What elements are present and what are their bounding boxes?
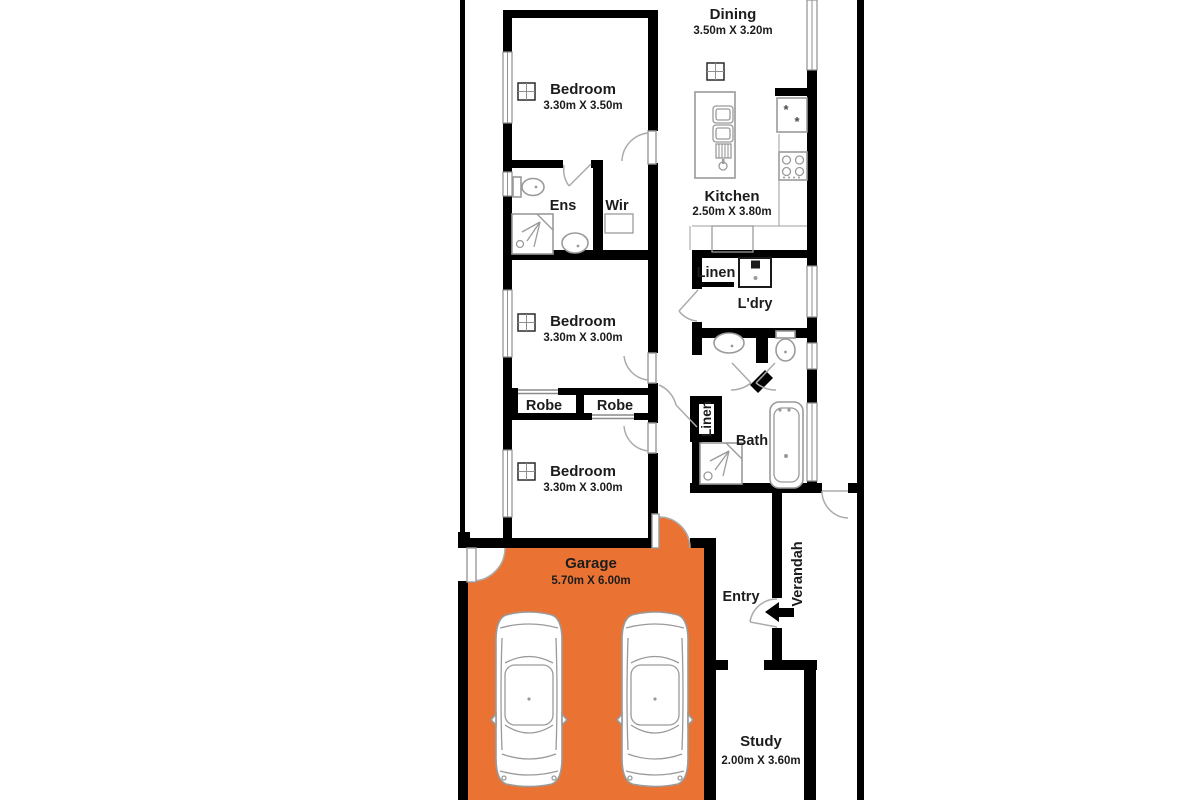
- room-bedroom-1: Bedroom 3.30m X 3.50m: [543, 81, 622, 112]
- window-grid-icon: [518, 463, 535, 480]
- room-label: Entry: [722, 589, 759, 605]
- window-grid-icon: [518, 314, 535, 331]
- room-ensuite: Ens: [550, 198, 577, 214]
- room-kitchen: Kitchen 2.50m X 3.80m: [692, 188, 771, 218]
- room-label: Robe: [597, 398, 633, 414]
- shower-icon: [700, 443, 742, 484]
- kitchen-island: [695, 92, 735, 178]
- room-label: Verandah: [790, 541, 806, 606]
- door-laundry: [679, 290, 698, 321]
- room-dining: Dining 3.50m X 3.20m: [693, 6, 772, 37]
- room-label: L'dry: [738, 296, 773, 312]
- room-study: Study 2.00m X 3.60m: [721, 733, 800, 767]
- room-label: Wir: [605, 198, 629, 214]
- laundry-trough-icon: [739, 258, 771, 287]
- wir-shelf: [605, 214, 633, 233]
- door-bedroom3: [624, 423, 656, 453]
- room-dims: 5.70m X 6.00m: [551, 575, 630, 587]
- room-label: Garage: [565, 555, 617, 572]
- door-bedroom2: [624, 353, 656, 383]
- room-label: Bedroom: [550, 81, 616, 98]
- room-dims: 3.50m X 3.20m: [693, 25, 772, 37]
- window-grid-icon: [707, 63, 724, 80]
- room-label: Bedroom: [550, 313, 616, 330]
- door-verandah: [822, 491, 848, 518]
- room-label: Dining: [710, 6, 757, 23]
- room-dims: 3.30m X 3.00m: [543, 482, 622, 494]
- room-dims: 2.00m X 3.60m: [721, 755, 800, 767]
- room-label: Linen: [697, 265, 736, 281]
- room-dims: 3.30m X 3.50m: [543, 100, 622, 112]
- room-linen-laundry: Linen: [697, 265, 736, 281]
- floor-plan-image: * *: [0, 0, 1200, 800]
- room-label: Bedroom: [550, 463, 616, 480]
- door-powder: [731, 363, 751, 390]
- room-label: Ens: [550, 198, 577, 214]
- toilet-icon: [513, 177, 544, 197]
- room-dims: 2.50m X 3.80m: [692, 206, 771, 218]
- basin-icon: [562, 233, 588, 253]
- room-bedroom-3: Bedroom 3.30m X 3.00m: [543, 463, 622, 494]
- fridge-icon: * *: [777, 98, 807, 132]
- room-wir: Wir: [605, 198, 629, 214]
- room-bath: Bath: [736, 433, 768, 449]
- room-label: Bath: [736, 433, 768, 449]
- room-label: Linen: [699, 401, 714, 437]
- room-robe-2: Robe: [597, 398, 633, 414]
- car-icon: [491, 612, 567, 787]
- shower-icon: [512, 214, 553, 254]
- room-entry: Entry: [722, 589, 759, 605]
- window-grid-icon: [518, 83, 535, 100]
- room-verandah: Verandah: [790, 541, 806, 606]
- car-icon: [617, 612, 693, 787]
- door-ens: [564, 164, 591, 186]
- room-label: Robe: [526, 398, 562, 414]
- room-laundry: L'dry: [738, 296, 773, 312]
- room-dims: 3.30m X 3.00m: [543, 332, 622, 344]
- door-bedroom1: [622, 131, 656, 164]
- floorplan-page: * *: [0, 0, 1200, 800]
- room-label: Study: [740, 733, 782, 750]
- basin-icon: [714, 333, 744, 353]
- room-bedroom-2: Bedroom 3.30m X 3.00m: [543, 313, 622, 344]
- door-garage-internal: [652, 514, 690, 548]
- cooktop-icon: [779, 152, 807, 180]
- room-linen-bath: Linen: [699, 401, 714, 437]
- bathtub-icon: [770, 402, 803, 488]
- room-robe-1: Robe: [526, 398, 562, 414]
- toilet-icon: [776, 331, 795, 361]
- room-label: Kitchen: [704, 188, 759, 205]
